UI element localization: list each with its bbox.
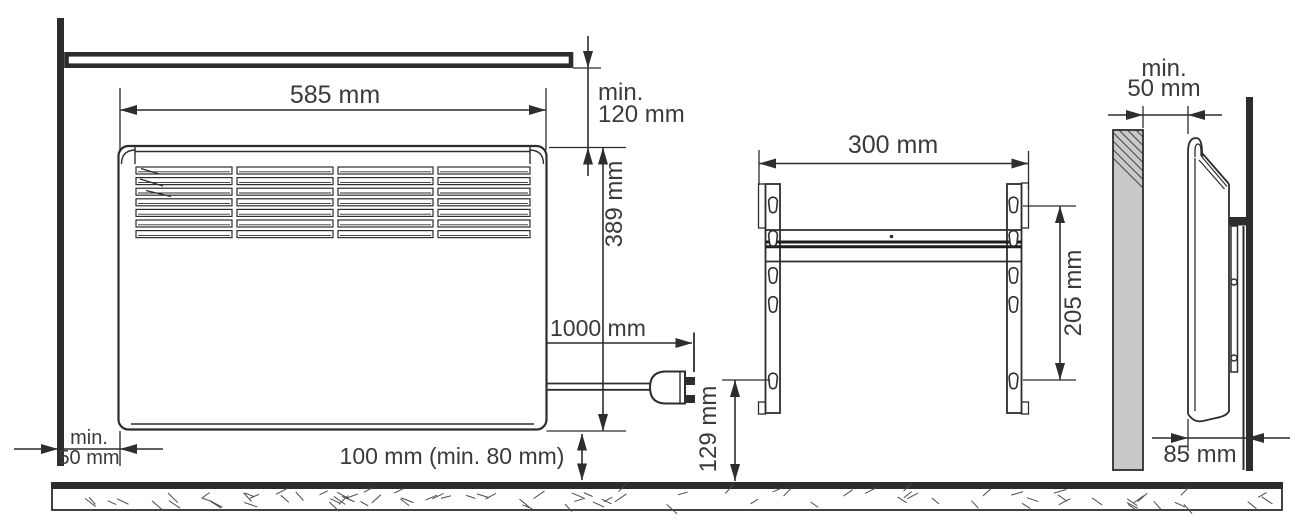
heater-side-profile: [1188, 138, 1229, 421]
grille-slat: [438, 167, 530, 174]
bracket-screw-top: [1231, 279, 1237, 285]
keyhole-slot: [1009, 297, 1018, 313]
label-height-389: 389 mm: [601, 161, 628, 248]
grille-slat: [438, 209, 530, 216]
arrowhead: [1126, 110, 1143, 120]
arrowhead: [1055, 206, 1065, 223]
keyhole-slot: [1009, 197, 1018, 213]
label-depth-85: 85 mm: [1163, 441, 1236, 468]
profile-top-cap-inner: [1195, 144, 1201, 157]
hatch-line: [1117, 128, 1300, 474]
arrowhead: [730, 380, 740, 397]
side-view: [1083, 97, 1300, 474]
crossbar-center-mark: [890, 235, 894, 239]
label-front-clearance-2: 50 mm: [1127, 75, 1200, 102]
grille-slat: [438, 188, 530, 195]
label-bracket-width-300: 300 mm: [848, 131, 938, 159]
label-height-389-wrap: 389 mm: [601, 161, 628, 248]
plug-pin-bottom: [685, 395, 695, 403]
bracket-view: [759, 183, 1029, 414]
grille-slat: [338, 178, 433, 185]
keyhole-slot: [1009, 231, 1018, 247]
bracket-tabs: [759, 183, 1029, 414]
arrowhead: [41, 444, 58, 454]
arrowhead: [1012, 159, 1029, 169]
arrowhead: [529, 105, 546, 115]
bracket-back-strip: [1231, 226, 1238, 372]
ceiling-shelf: [67, 54, 572, 65]
grille-slat: [438, 220, 530, 227]
label-bottom-hole-height-129: 129 mm: [695, 386, 722, 473]
power-cord: [547, 384, 653, 390]
obstacle-fill: [1113, 130, 1143, 470]
bracket-top-hook: [1229, 217, 1247, 226]
plug-pin-top: [685, 377, 695, 385]
grille-slat: [237, 188, 333, 195]
profile-bottom-edge: [1188, 411, 1229, 421]
grille-slat: [438, 178, 530, 185]
arrowhead: [676, 338, 693, 348]
grille-slat: [338, 199, 433, 206]
arrowhead: [120, 105, 137, 115]
keyhole-slot: [769, 373, 778, 389]
side-bracket: [1229, 217, 1247, 470]
label-ceiling-clearance-2: 120 mm: [598, 101, 685, 128]
hatch-line: [1126, 128, 1300, 474]
arrowhead: [577, 434, 587, 451]
air-grille: [136, 167, 530, 238]
arrowhead: [583, 51, 593, 68]
wall-left: [57, 18, 64, 466]
installation-diagram-page: 585 mm min. 120 mm 389 mm 1000 mm 100 mm…: [0, 0, 1300, 532]
grille-slat: [438, 199, 530, 206]
grille-slat: [136, 178, 232, 185]
grille-slat: [136, 209, 232, 216]
arrowhead: [1188, 110, 1205, 120]
floor: [51, 483, 1283, 514]
grille-slat: [338, 231, 433, 238]
grille-slat: [338, 167, 433, 174]
grille-slat: [237, 178, 333, 185]
grille-slat: [237, 220, 333, 227]
grille-slat: [338, 209, 433, 216]
arrowhead: [598, 414, 608, 431]
profile-top-slant-2: [1202, 157, 1227, 187]
label-width-585: 585 mm: [290, 81, 380, 109]
arrowhead: [730, 464, 740, 481]
keyhole-slot: [769, 231, 778, 247]
arrowhead: [1055, 363, 1065, 380]
bracket-crossbar: [766, 230, 1022, 262]
label-left-wall-clearance-1: min.: [70, 427, 108, 449]
keyhole-slot: [769, 297, 778, 313]
label-bottom-hole-height-wrap: 129 mm: [695, 386, 722, 473]
grille-slat: [237, 167, 333, 174]
grille-slat: [136, 199, 232, 206]
label-floor-clearance: 100 mm (min. 80 mm): [340, 443, 565, 469]
keyhole-slot: [769, 268, 778, 284]
grille-slat: [338, 188, 433, 195]
grille-slat: [237, 209, 333, 216]
arrowhead: [577, 464, 587, 481]
grille-slat: [136, 231, 232, 238]
grille-slat: [136, 220, 232, 227]
keyhole-slot: [1009, 373, 1018, 389]
keyhole-slot: [1009, 268, 1018, 284]
grille-slat: [438, 231, 530, 238]
arrowhead: [120, 444, 137, 454]
bracket-screw-bottom: [1231, 355, 1237, 361]
power-plug: [650, 372, 695, 404]
installation-diagram: 585 mm min. 120 mm 389 mm 1000 mm 100 mm…: [0, 0, 1300, 532]
grille-slat: [136, 167, 232, 174]
grille-slat: [338, 220, 433, 227]
obstacle: [1083, 128, 1300, 474]
grille-slat: [237, 231, 333, 238]
arrowhead: [583, 148, 593, 165]
label-hole-spacing-205: 205 mm: [1060, 250, 1087, 337]
label-hole-spacing-wrap: 205 mm: [1060, 250, 1087, 337]
bracket-keyhole-slots: [769, 197, 1018, 389]
label-cord-1000: 1000 mm: [550, 315, 646, 341]
grille-slat: [237, 199, 333, 206]
wall-right: [1246, 97, 1253, 471]
keyhole-slot: [769, 197, 778, 213]
label-left-wall-clearance-2: 50 mm: [58, 447, 119, 469]
arrowhead: [759, 159, 776, 169]
